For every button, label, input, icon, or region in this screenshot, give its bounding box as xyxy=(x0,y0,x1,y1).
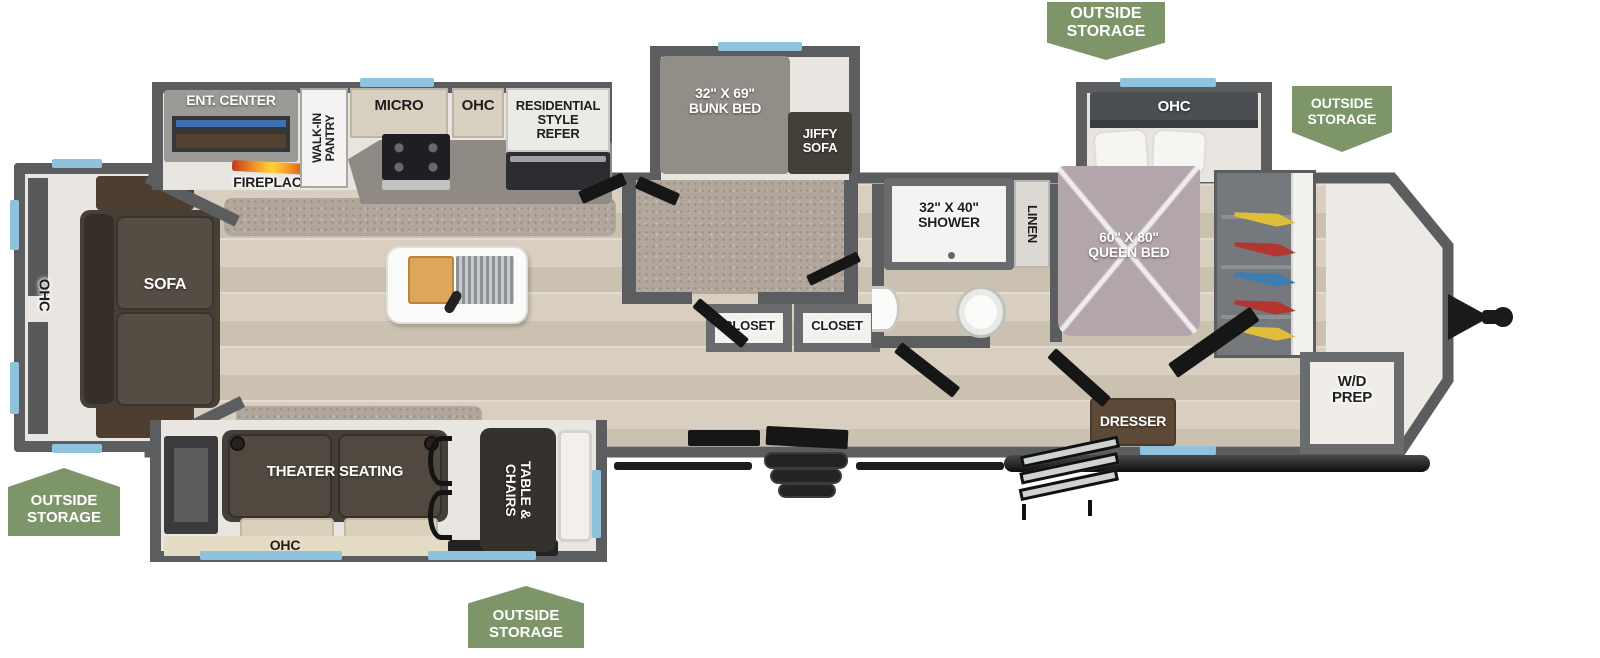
living-tv-cabinet xyxy=(164,436,218,534)
sofa xyxy=(80,210,220,408)
rear-cabinet-bottom xyxy=(28,322,48,434)
theater-seating-label: THEATER SEATING xyxy=(250,462,420,482)
shower-label: 32" X 40" SHOWER xyxy=(890,198,1008,232)
bunkroom-wall-bottom xyxy=(758,292,858,304)
kitchen-island xyxy=(386,246,528,324)
entertainment-center: ENT. CENTER xyxy=(164,90,298,162)
queen-bed-label: 60" X 80" QUEEN BED xyxy=(1074,228,1184,262)
tv-unit xyxy=(172,116,290,152)
step-leg xyxy=(1088,500,1092,516)
wardrobe-front-panel xyxy=(1291,173,1313,355)
table-chairs-label: TABLE & CHAIRS xyxy=(480,432,556,548)
bedroom-ohc-lip xyxy=(1090,120,1258,128)
living-tv-screen xyxy=(174,448,208,522)
tv-shelf xyxy=(176,134,286,148)
window xyxy=(360,78,434,87)
entry-step xyxy=(778,483,836,498)
dinette-chair xyxy=(428,436,452,486)
window xyxy=(1140,446,1216,455)
sofa-cushion xyxy=(116,312,214,406)
sofa-label: SOFA xyxy=(118,274,212,296)
entry-step xyxy=(770,468,842,484)
step-leg xyxy=(1022,504,1026,520)
ent-center-label: ENT. CENTER xyxy=(166,92,296,110)
awning-rail xyxy=(856,462,1004,470)
awning-rail xyxy=(614,462,752,470)
floorplan-canvas: OHC SOFA ENT. CENTER FIREPLACE WALK-IN P… xyxy=(0,0,1600,658)
shower-drain xyxy=(948,252,955,259)
window xyxy=(428,551,536,560)
bedroom-ohc-label: OHC xyxy=(1130,98,1218,116)
window xyxy=(200,551,342,560)
cupholder xyxy=(230,436,245,451)
refer-label: RESIDENTIAL STYLE REFER xyxy=(506,90,610,150)
hitch-ball xyxy=(1493,307,1513,327)
window xyxy=(10,200,19,250)
micro-label: MICRO xyxy=(350,96,448,116)
linen-label: LINEN xyxy=(1004,180,1060,268)
toilet xyxy=(956,286,1006,338)
bunk-bed-label: 32" X 69" BUNK BED xyxy=(664,84,786,118)
closet-2-label: CLOSET xyxy=(794,316,880,336)
tv-screen xyxy=(176,120,286,127)
dinette-chair xyxy=(428,490,452,540)
bunkroom-wall-right xyxy=(844,180,858,300)
entry-door-panel xyxy=(688,430,760,446)
window xyxy=(718,42,802,51)
bunkroom-wall-bottom xyxy=(622,292,692,304)
window xyxy=(10,362,19,414)
bunkroom-wall-left xyxy=(622,180,636,300)
dinette-bench xyxy=(558,430,592,542)
oven-front xyxy=(382,180,450,190)
rear-ohc-label: OHC xyxy=(26,252,60,338)
island-sink xyxy=(456,256,514,304)
window xyxy=(1120,78,1216,87)
entry-step xyxy=(764,452,848,469)
window xyxy=(52,444,102,453)
cutting-board xyxy=(408,256,454,304)
wardrobe-shelf xyxy=(1221,265,1291,269)
dresser-label: DRESSER xyxy=(1090,412,1176,432)
sofa-backrest xyxy=(84,214,114,404)
window xyxy=(52,159,102,168)
cooktop xyxy=(382,134,450,180)
wd-prep-label: W/D PREP xyxy=(1300,370,1404,410)
window xyxy=(592,470,601,538)
kitchen-ohc-label: OHC xyxy=(452,96,504,116)
bath-wall-bottom xyxy=(872,336,990,348)
jiffy-sofa-label: JIFFY SOFA xyxy=(788,126,852,156)
fridge-handle xyxy=(510,156,606,162)
